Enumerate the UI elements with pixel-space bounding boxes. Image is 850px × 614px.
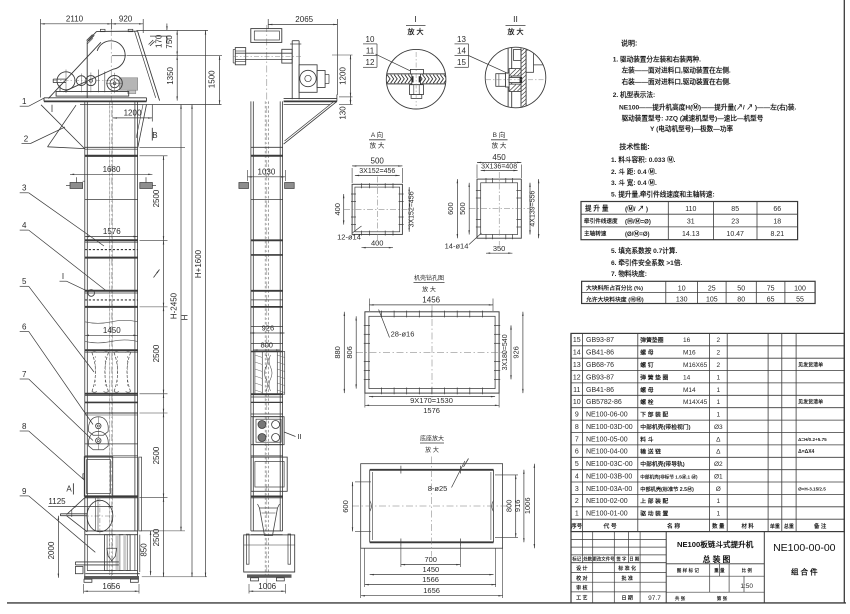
- svg-text:130: 130: [339, 106, 348, 120]
- svg-text:1: 1: [22, 97, 27, 106]
- svg-text:NE100-05-00: NE100-05-00: [586, 436, 628, 443]
- svg-text:3X152=456: 3X152=456: [409, 191, 416, 227]
- svg-text:10: 10: [366, 35, 375, 44]
- svg-text:提 升 量: 提 升 量: [585, 203, 609, 212]
- svg-text:16: 16: [683, 337, 691, 344]
- svg-text:12: 12: [573, 374, 581, 381]
- svg-text:5: 5: [22, 277, 27, 286]
- svg-text:1:50: 1:50: [740, 583, 753, 590]
- svg-text:Δ: Δ: [716, 449, 721, 456]
- svg-text:NE100-01-00: NE100-01-00: [586, 511, 628, 518]
- svg-text:3X152=456: 3X152=456: [359, 168, 395, 175]
- svg-text:8: 8: [22, 422, 27, 431]
- svg-text:850: 850: [139, 543, 148, 557]
- svg-text:放 大: 放 大: [425, 446, 439, 454]
- svg-text:105: 105: [706, 297, 718, 304]
- svg-text:3X136=408: 3X136=408: [481, 163, 517, 170]
- svg-text:工 艺: 工 艺: [576, 595, 587, 602]
- svg-text:见发货清单: 见发货清单: [798, 362, 823, 369]
- svg-text:M14X45: M14X45: [683, 399, 708, 406]
- svg-text:916: 916: [513, 500, 522, 513]
- svg-text:65: 65: [767, 297, 775, 304]
- svg-text:日 期: 日 期: [622, 595, 633, 602]
- svg-text:放 大: 放 大: [407, 27, 424, 36]
- svg-text:806: 806: [345, 346, 354, 359]
- svg-text:2500: 2500: [152, 189, 161, 207]
- svg-text:NE100-00-00: NE100-00-00: [773, 542, 836, 554]
- svg-text:10.47: 10.47: [726, 231, 744, 238]
- svg-text:驱动装置型号: JZQ (减速机型号)—速比—机型号: 驱动装置型号: JZQ (减速机型号)—速比—机型号: [622, 114, 764, 123]
- svg-text:(Ⓜ/Ⓜ=Ø): (Ⓜ/Ⓜ=Ø): [625, 218, 651, 226]
- svg-text:NE100-03B-00: NE100-03B-00: [586, 474, 632, 481]
- svg-text:2: 2: [24, 134, 29, 143]
- svg-text:66: 66: [773, 206, 781, 213]
- svg-text:A 向: A 向: [371, 130, 383, 139]
- svg-text:中部机壳(标准节 2.5Ⓜ): 中部机壳(标准节 2.5Ⓜ): [640, 485, 694, 493]
- svg-text:底座放大: 底座放大: [420, 435, 444, 443]
- svg-text:Ø2: Ø2: [714, 461, 723, 468]
- svg-text:14: 14: [683, 374, 691, 381]
- svg-text:25: 25: [708, 285, 716, 292]
- svg-text:12-ø14: 12-ø14: [337, 233, 361, 242]
- svg-text:880: 880: [333, 346, 342, 359]
- svg-text:标 准 化: 标 准 化: [617, 565, 636, 572]
- svg-text:1500: 1500: [207, 70, 216, 88]
- svg-text:NE100——提升机高度H(Ⓜ)——提升量(↗/ ↗ ): NE100——提升机高度H(Ⓜ)——提升量(↗/ ↗ )——左(右)装.: [619, 103, 796, 112]
- svg-text:H-2450: H-2450: [170, 292, 179, 319]
- svg-text:(Ø/Ⓜ=Ø): (Ø/Ⓜ=Ø): [625, 230, 650, 238]
- svg-text:H+1600: H+1600: [194, 249, 203, 278]
- svg-text:GB41-86: GB41-86: [586, 350, 614, 357]
- svg-text:6. 牵引件安全系数 >1倍.: 6. 牵引件安全系数 >1倍.: [611, 258, 682, 267]
- svg-text:2500: 2500: [152, 446, 161, 464]
- svg-text:Ø: Ø: [716, 486, 721, 493]
- svg-text:螺 母: 螺 母: [640, 349, 653, 357]
- svg-text:500: 500: [458, 202, 467, 215]
- svg-text:14: 14: [573, 350, 581, 357]
- svg-text:放 大: 放 大: [492, 141, 507, 150]
- svg-text:700: 700: [424, 555, 437, 564]
- svg-text:97.7: 97.7: [648, 595, 661, 602]
- svg-text:放 大: 放 大: [507, 27, 524, 36]
- svg-text:总重: 总重: [784, 523, 794, 530]
- svg-text:3: 3: [22, 184, 27, 193]
- svg-text:1030: 1030: [258, 167, 276, 176]
- svg-text:材 料: 材 料: [740, 522, 754, 530]
- svg-text:2. 机型表示法:: 2. 机型表示法:: [613, 90, 656, 99]
- svg-text:驱 动 装 置: 驱 动 装 置: [640, 510, 668, 518]
- svg-text:I: I: [62, 272, 64, 281]
- svg-text:11: 11: [366, 47, 375, 56]
- svg-text:7. 物料块度:: 7. 物料块度:: [611, 269, 647, 278]
- svg-text:1450: 1450: [423, 565, 440, 574]
- svg-text:2110: 2110: [66, 15, 84, 24]
- svg-text:9: 9: [22, 487, 27, 496]
- svg-text:放 大: 放 大: [422, 286, 436, 294]
- svg-text:1006: 1006: [523, 497, 532, 514]
- svg-text:500: 500: [371, 157, 385, 166]
- svg-text:牵引件线速度: 牵引件线速度: [584, 217, 618, 225]
- svg-text:技术性能:: 技术性能:: [619, 142, 649, 151]
- svg-text:名 称: 名 称: [667, 522, 680, 530]
- svg-text:8.21: 8.21: [770, 231, 784, 238]
- svg-text:第 张: 第 张: [717, 595, 728, 602]
- svg-text:6: 6: [22, 322, 27, 331]
- svg-text:II: II: [297, 432, 301, 441]
- svg-text:400: 400: [333, 203, 342, 216]
- svg-text:2500: 2500: [152, 344, 161, 362]
- svg-text:H: H: [181, 314, 190, 320]
- svg-text:更改文件号: 更改文件号: [593, 556, 616, 563]
- svg-text:50: 50: [737, 285, 745, 292]
- svg-text:总 装 图: 总 装 图: [703, 554, 731, 564]
- svg-text:2: 2: [716, 362, 720, 369]
- svg-text:1576: 1576: [423, 406, 440, 415]
- svg-text:中部机壳(带导轨): 中部机壳(带导轨): [640, 460, 685, 468]
- svg-text:23: 23: [731, 219, 739, 226]
- svg-text:NE100-03C-00: NE100-03C-00: [586, 461, 633, 468]
- svg-text:输 送 链: 输 送 链: [640, 448, 661, 456]
- svg-text:螺 母: 螺 母: [640, 386, 653, 394]
- svg-text:螺 钉: 螺 钉: [640, 361, 653, 369]
- svg-text:NE100-06-00: NE100-06-00: [586, 412, 628, 419]
- svg-text:14.13: 14.13: [682, 231, 700, 238]
- svg-text:10: 10: [573, 399, 581, 406]
- svg-text:上 部 装 配: 上 部 装 配: [640, 497, 668, 505]
- svg-text:1656: 1656: [423, 586, 440, 595]
- svg-text:14-ø14: 14-ø14: [445, 242, 469, 251]
- svg-text:螺 栓: 螺 栓: [640, 398, 653, 406]
- svg-text:校 对: 校 对: [576, 575, 587, 582]
- svg-text:10: 10: [678, 285, 686, 292]
- svg-text:主轴转速: 主轴转速: [584, 230, 607, 238]
- svg-text:NE100板链斗式提升机: NE100板链斗式提升机: [677, 539, 754, 549]
- svg-text:2: 2: [716, 337, 720, 344]
- svg-text:450: 450: [492, 153, 506, 162]
- svg-text:75: 75: [767, 285, 775, 292]
- svg-text:920: 920: [119, 15, 133, 24]
- svg-text:6: 6: [575, 449, 579, 456]
- svg-text:NE100-03A-00: NE100-03A-00: [586, 486, 632, 493]
- svg-text:处数: 处数: [582, 556, 592, 563]
- svg-text:110: 110: [685, 206, 696, 213]
- svg-text:1: 1: [716, 412, 720, 419]
- svg-text:1: 1: [716, 498, 720, 505]
- svg-text:比 例: 比 例: [741, 567, 752, 574]
- svg-text:2000: 2000: [47, 541, 56, 559]
- svg-text:右装——面对进料口,驱动装置在右侧.: 右装——面对进料口,驱动装置在右侧.: [622, 77, 731, 86]
- svg-text:1: 1: [575, 511, 579, 518]
- svg-text:18: 18: [773, 219, 781, 226]
- svg-text:170: 170: [155, 34, 164, 48]
- svg-text:放 大: 放 大: [370, 141, 385, 150]
- svg-text:5. 填充系数按 0.7计算.: 5. 填充系数按 0.7计算.: [611, 246, 677, 255]
- svg-text:中部机壳(带检视门): 中部机壳(带检视门): [640, 423, 690, 431]
- svg-text:机壳钻孔图: 机壳钻孔图: [414, 274, 444, 282]
- svg-text:Ø=H-3.15/2.5: Ø=H-3.15/2.5: [798, 486, 826, 491]
- svg-text:1: 1: [716, 374, 720, 381]
- svg-text:31: 31: [687, 219, 695, 226]
- svg-text:1006: 1006: [258, 582, 276, 591]
- svg-text:标记: 标记: [571, 556, 581, 563]
- svg-text:Δ: Δ: [716, 436, 721, 443]
- svg-text:9: 9: [575, 412, 579, 419]
- svg-text:2: 2: [716, 350, 720, 357]
- svg-text:5: 5: [575, 461, 579, 468]
- svg-text:大块料所占百分比 (%): 大块料所占百分比 (%): [586, 284, 643, 292]
- svg-text:弹簧垫圈: 弹簧垫圈: [640, 336, 663, 344]
- svg-text:设 计: 设 计: [576, 565, 587, 572]
- svg-text:1. 料斗容积: 0.033 Ⓜ.: 1. 料斗容积: 0.033 Ⓜ.: [611, 155, 676, 164]
- svg-text:GB5782-86: GB5782-86: [586, 399, 622, 406]
- svg-text:12: 12: [366, 58, 375, 67]
- svg-text:4: 4: [22, 221, 27, 230]
- svg-text:日 期: 日 期: [629, 556, 640, 563]
- svg-text:Ø1: Ø1: [714, 474, 723, 481]
- svg-text:1: 1: [716, 387, 720, 394]
- svg-text:1: 1: [716, 399, 720, 406]
- svg-text:800: 800: [260, 341, 273, 350]
- svg-text:130: 130: [676, 297, 688, 304]
- svg-text:1200: 1200: [124, 108, 142, 117]
- svg-text:GB68-76: GB68-76: [586, 362, 614, 369]
- svg-text:600: 600: [341, 500, 350, 513]
- svg-text:15: 15: [457, 58, 466, 67]
- svg-text:3: 3: [575, 486, 579, 493]
- svg-text:M16: M16: [683, 350, 696, 357]
- svg-text:1456: 1456: [422, 296, 440, 305]
- svg-text:85: 85: [731, 206, 739, 213]
- svg-text:2: 2: [575, 498, 579, 505]
- svg-text:8-ø25: 8-ø25: [428, 484, 448, 493]
- svg-text:750: 750: [165, 35, 174, 49]
- svg-text:批 准: 批 准: [622, 575, 633, 582]
- svg-text:7: 7: [22, 370, 27, 379]
- svg-text:600: 600: [446, 202, 455, 215]
- svg-text:说明:: 说明:: [621, 39, 637, 48]
- svg-text:3. 斗 宽: 0.4 Ⓜ.: 3. 斗 宽: 0.4 Ⓜ.: [611, 178, 657, 187]
- svg-text:55: 55: [796, 297, 804, 304]
- svg-text:数 量: 数 量: [712, 522, 725, 530]
- svg-text:(Ⓜ/ ↗ ): (Ⓜ/ ↗ ): [625, 204, 648, 213]
- svg-text:3X180=540: 3X180=540: [502, 334, 509, 370]
- svg-text:B 向: B 向: [493, 130, 506, 139]
- svg-text:350: 350: [493, 244, 506, 253]
- svg-text:1125: 1125: [48, 497, 66, 506]
- svg-text:13: 13: [573, 362, 581, 369]
- svg-text:4: 4: [575, 474, 579, 481]
- svg-text:图 样 标 记: 图 样 标 记: [677, 567, 700, 574]
- svg-text:Y (电动机型号)—极数—功率: Y (电动机型号)—极数—功率: [650, 124, 733, 133]
- svg-text:GB41-86: GB41-86: [586, 387, 614, 394]
- svg-text:80: 80: [737, 297, 745, 304]
- svg-text:13: 13: [457, 35, 466, 44]
- svg-text:14: 14: [457, 47, 466, 56]
- svg-text:GB93-87: GB93-87: [586, 337, 614, 344]
- svg-text:II: II: [513, 14, 518, 24]
- svg-text:M14: M14: [683, 387, 696, 394]
- svg-text:2. 斗 距: 0.4 Ⓜ.: 2. 斗 距: 0.4 Ⓜ.: [611, 167, 657, 176]
- svg-text:1656: 1656: [102, 582, 120, 591]
- svg-text:7: 7: [575, 436, 579, 443]
- svg-text:A: A: [66, 485, 72, 494]
- svg-text:弹 簧 垫 圈: 弹 簧 垫 圈: [640, 373, 668, 381]
- svg-text:代 号: 代 号: [602, 522, 616, 530]
- svg-text:2065: 2065: [295, 15, 313, 24]
- svg-text:Ø3: Ø3: [714, 424, 723, 431]
- svg-text:926: 926: [512, 346, 521, 359]
- svg-text:11: 11: [573, 387, 580, 394]
- svg-text:NE100-04-00: NE100-04-00: [586, 449, 628, 456]
- svg-text:M16X65: M16X65: [683, 362, 708, 369]
- svg-text:下 部 装 配: 下 部 装 配: [640, 411, 668, 419]
- svg-text:中部机壳(非标节 1.5Ⓜ,1 Ⓜ): 中部机壳(非标节 1.5Ⓜ,1 Ⓜ): [640, 474, 698, 481]
- svg-text:1566: 1566: [422, 575, 439, 584]
- svg-text:15: 15: [573, 337, 581, 344]
- svg-text:允许大块料块度 (ⓂⓂ): 允许大块料块度 (ⓂⓂ): [585, 295, 644, 303]
- svg-text:B: B: [152, 131, 157, 140]
- svg-text:1680: 1680: [103, 165, 121, 174]
- svg-text:1. 驱动装置分左装和右装两种.: 1. 驱动装置分左装和右装两种.: [613, 55, 701, 64]
- svg-text:序号: 序号: [570, 522, 582, 530]
- svg-text:Δ=H/0.2+5.75: Δ=H/0.2+5.75: [798, 437, 827, 442]
- svg-text:8: 8: [575, 424, 579, 431]
- svg-text:共 张: 共 张: [675, 595, 686, 602]
- svg-text:重 量: 重 量: [714, 567, 725, 574]
- svg-text:组 合 件: 组 合 件: [791, 567, 818, 577]
- svg-text:400: 400: [371, 238, 384, 247]
- svg-text:9X170=1530: 9X170=1530: [410, 396, 453, 405]
- svg-text:NE100-03D-00: NE100-03D-00: [586, 424, 633, 431]
- svg-text:备 注: 备 注: [813, 522, 827, 530]
- svg-text:GB93-87: GB93-87: [586, 374, 614, 381]
- svg-text:5. 提升量,牵引件线速度和主轴转速:: 5. 提升量,牵引件线速度和主轴转速:: [611, 190, 715, 199]
- svg-text:28-ø16: 28-ø16: [391, 330, 415, 339]
- svg-text:926: 926: [262, 324, 275, 333]
- svg-text:单重: 单重: [770, 523, 780, 530]
- svg-text:Δ=ΔX4: Δ=ΔX4: [798, 449, 814, 455]
- svg-text:审 核: 审 核: [576, 585, 587, 592]
- svg-text:1: 1: [716, 511, 720, 518]
- svg-text:I: I: [414, 14, 416, 24]
- svg-text:NE100-02-00: NE100-02-00: [586, 498, 628, 505]
- svg-text:料 斗: 料 斗: [640, 435, 653, 443]
- svg-text:左装——面对进料口,驱动装置在左侧.: 左装——面对进料口,驱动装置在左侧.: [621, 66, 731, 75]
- svg-text:1450: 1450: [103, 326, 121, 335]
- svg-text:1576: 1576: [103, 227, 121, 236]
- svg-text:1350: 1350: [166, 66, 175, 84]
- svg-text:100: 100: [794, 285, 806, 292]
- svg-text:见发货清单: 见发货清单: [798, 399, 823, 406]
- svg-text:1200: 1200: [339, 67, 348, 85]
- svg-text:签 字: 签 字: [615, 556, 627, 563]
- svg-text:4X139=556: 4X139=556: [529, 190, 536, 226]
